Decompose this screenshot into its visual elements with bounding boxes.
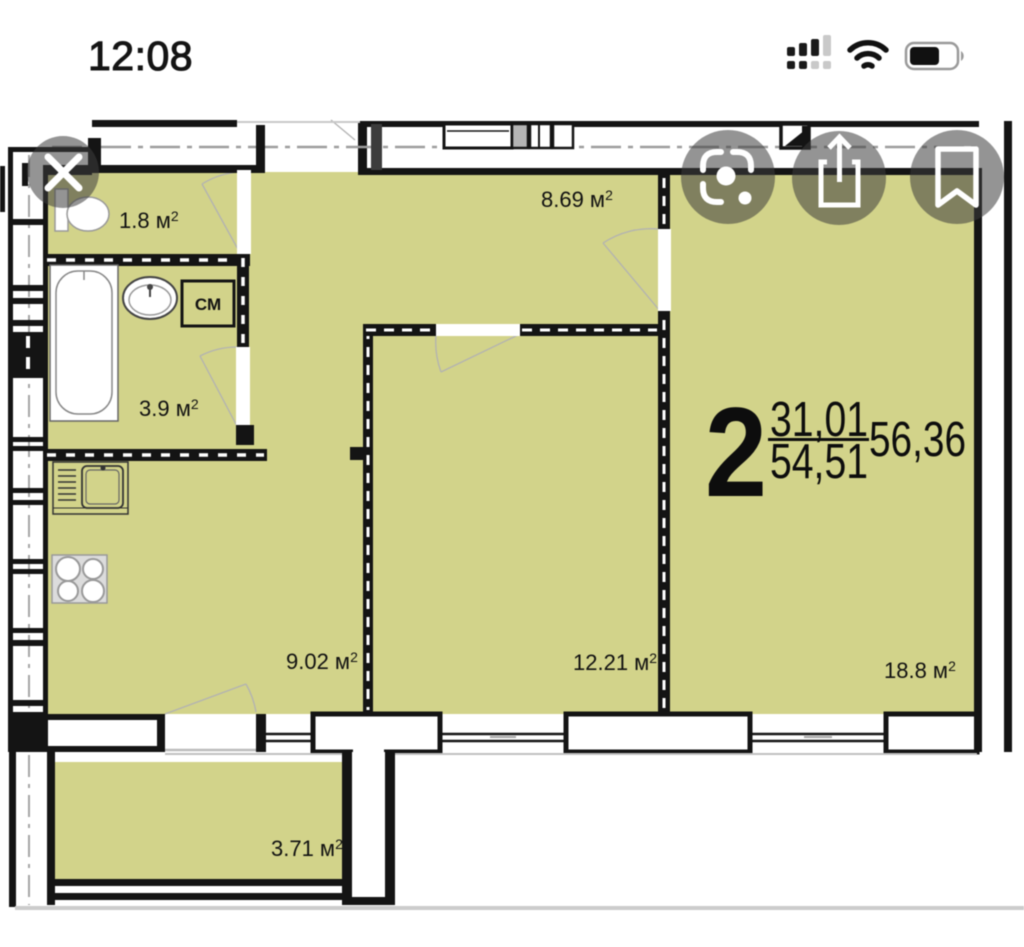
svg-text:3.9 м2: 3.9 м2 (139, 396, 199, 421)
svg-text:54,51: 54,51 (770, 435, 868, 489)
svg-text:3.71 м2: 3.71 м2 (271, 836, 343, 861)
svg-text:18.8 м2: 18.8 м2 (884, 658, 956, 683)
svg-text:56,36: 56,36 (869, 413, 966, 467)
svg-text:8.69 м2: 8.69 м2 (541, 187, 613, 212)
svg-text:2: 2 (705, 381, 767, 523)
svg-text:9.02 м2: 9.02 м2 (286, 649, 358, 674)
svg-text:СМ: СМ (195, 295, 221, 314)
svg-text:12.21 м2: 12.21 м2 (573, 650, 657, 675)
svg-text:12:08: 12:08 (88, 33, 193, 79)
svg-text:1.8 м2: 1.8 м2 (119, 208, 179, 233)
